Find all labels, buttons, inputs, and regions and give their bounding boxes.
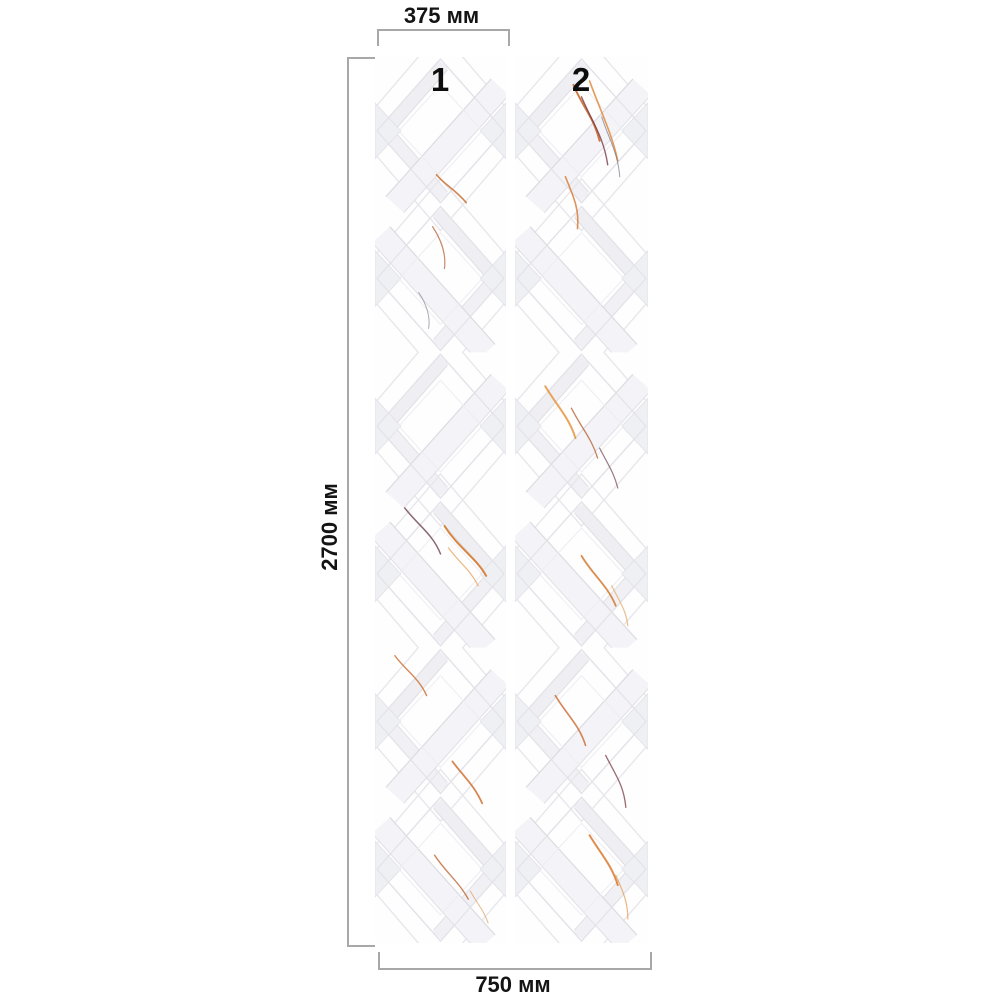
panel-2-marble-pattern — [515, 57, 648, 943]
left-dimension-label: 2700 мм — [319, 483, 341, 571]
top-dimension-bracket — [377, 29, 510, 46]
panel-1-number: 1 — [375, 63, 506, 96]
panel-1-marble-pattern — [375, 57, 506, 943]
product-dimension-diagram: 375 мм 2700 мм — [0, 0, 1000, 1000]
bottom-dimension-label: 750 мм — [378, 974, 648, 996]
bottom-dimension-bracket — [378, 952, 652, 970]
left-dimension-bracket — [347, 57, 375, 947]
panel-2-number: 2 — [515, 63, 648, 96]
top-dimension-label: 375 мм — [377, 5, 506, 27]
panel-2: 2 — [515, 57, 648, 943]
panel-1: 1 — [375, 57, 506, 943]
